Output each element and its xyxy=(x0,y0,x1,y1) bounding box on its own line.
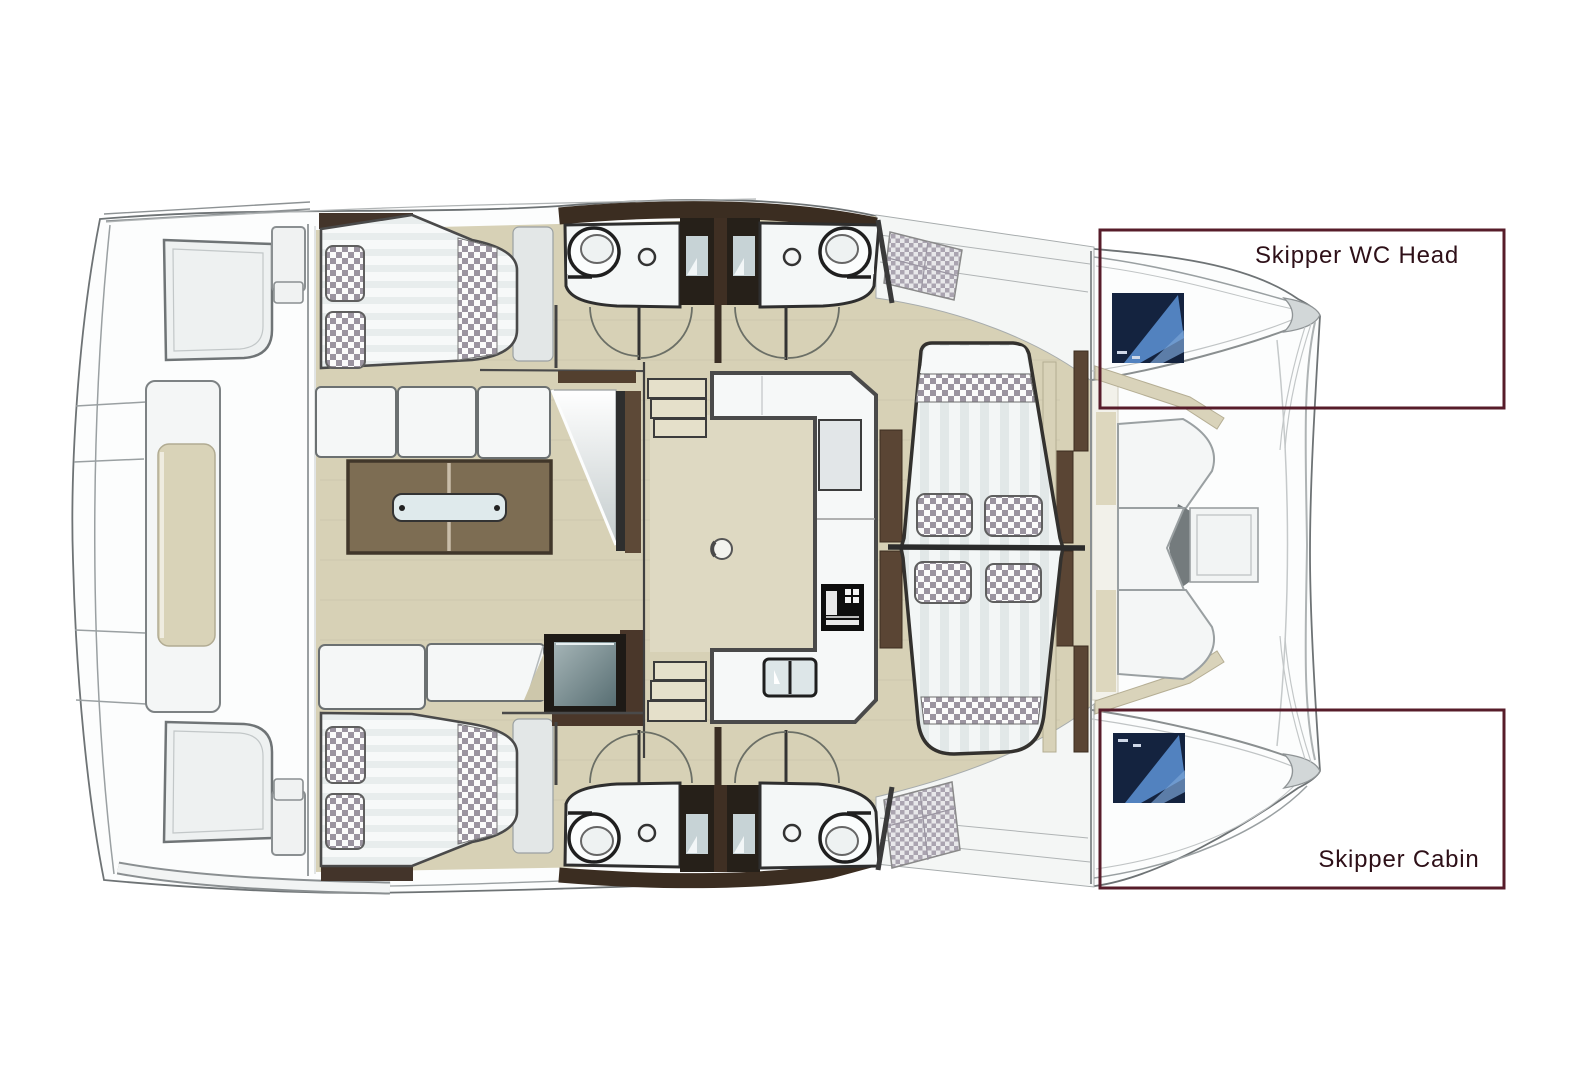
svg-text:Skipper Cabin: Skipper Cabin xyxy=(1318,846,1479,873)
svg-text:Skipper WC Head: Skipper WC Head xyxy=(1255,242,1459,269)
